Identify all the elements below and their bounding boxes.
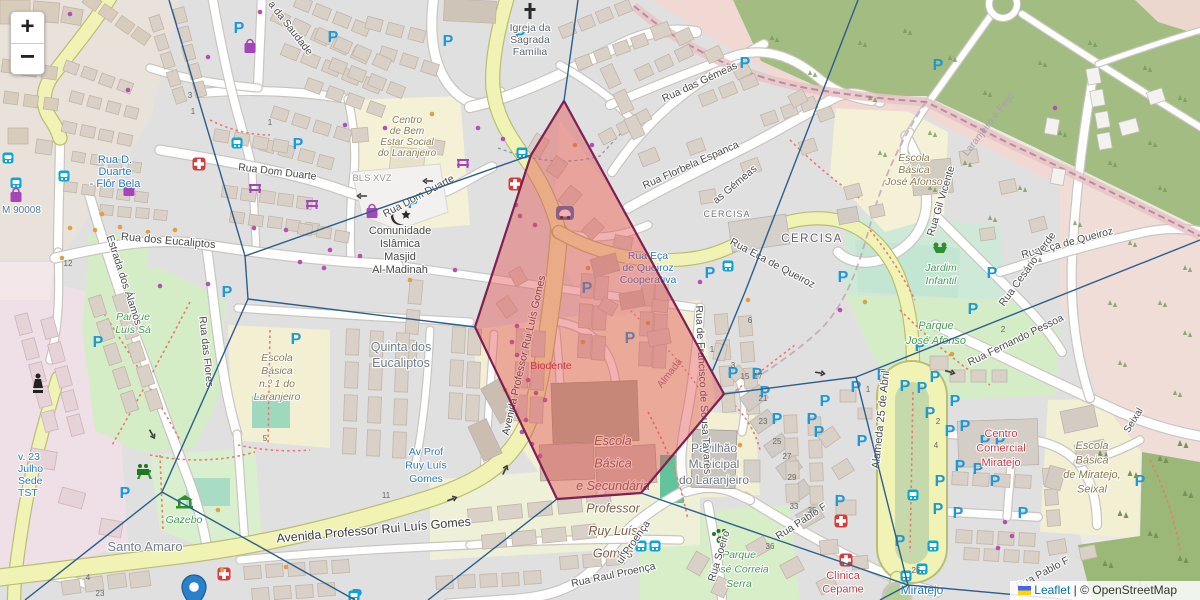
svg-text:Básica: Básica bbox=[1075, 455, 1108, 467]
svg-text:Seixal: Seixal bbox=[1077, 484, 1108, 496]
svg-text:Ruy Luís: Ruy Luís bbox=[405, 460, 446, 472]
svg-text:de Miratejo,: de Miratejo, bbox=[1063, 469, 1120, 481]
svg-text:26: 26 bbox=[912, 566, 921, 575]
svg-text:P: P bbox=[987, 265, 998, 282]
svg-text:Estar Social: Estar Social bbox=[380, 137, 434, 148]
svg-text:Comercial: Comercial bbox=[976, 443, 1026, 455]
svg-text:P: P bbox=[705, 265, 716, 282]
svg-text:Parque: Parque bbox=[918, 320, 953, 332]
svg-text:Quinta dos: Quinta dos bbox=[371, 340, 431, 354]
svg-text:Escola: Escola bbox=[261, 352, 293, 364]
svg-text:Cepame: Cepame bbox=[822, 584, 864, 596]
svg-text:Escola: Escola bbox=[1075, 440, 1108, 452]
svg-text:P: P bbox=[900, 378, 911, 395]
svg-text:Gazebo: Gazebo bbox=[166, 514, 203, 526]
svg-text:Infantil: Infantil bbox=[926, 275, 958, 287]
svg-text:P: P bbox=[933, 57, 944, 74]
svg-text:P: P bbox=[953, 505, 964, 522]
svg-text:5: 5 bbox=[263, 434, 268, 443]
svg-text:Clínica: Clínica bbox=[826, 570, 861, 582]
svg-text:P: P bbox=[234, 20, 245, 37]
svg-text:P: P bbox=[120, 485, 131, 502]
svg-text:P: P bbox=[945, 423, 956, 440]
svg-text:P: P bbox=[838, 269, 849, 286]
svg-text:11: 11 bbox=[382, 491, 391, 500]
svg-text:Jardim: Jardim bbox=[924, 262, 957, 274]
svg-text:Al-Madinah: Al-Madinah bbox=[372, 264, 428, 276]
svg-text:23: 23 bbox=[759, 417, 768, 426]
svg-text:P: P bbox=[291, 331, 302, 348]
svg-text:P: P bbox=[222, 284, 233, 301]
svg-text:n.º 1 do: n.º 1 do bbox=[259, 378, 295, 390]
svg-text:Escola: Escola bbox=[898, 152, 930, 164]
svg-text:1: 1 bbox=[268, 118, 273, 127]
svg-text:Eucaliptos: Eucaliptos bbox=[372, 356, 430, 370]
svg-text:Gomes: Gomes bbox=[409, 473, 443, 485]
svg-text:Duarte: Duarte bbox=[98, 166, 131, 178]
svg-text:P: P bbox=[930, 369, 941, 386]
svg-text:de Bem: de Bem bbox=[390, 126, 424, 137]
svg-text:P: P bbox=[328, 29, 339, 46]
svg-text:P: P bbox=[968, 301, 979, 318]
svg-text:29: 29 bbox=[788, 473, 797, 482]
svg-text:P: P bbox=[950, 393, 961, 410]
svg-text:3: 3 bbox=[731, 361, 736, 370]
svg-text:TST: TST bbox=[18, 487, 38, 499]
svg-text:4: 4 bbox=[86, 573, 91, 582]
svg-text:P: P bbox=[933, 501, 944, 518]
svg-text:2: 2 bbox=[936, 417, 941, 426]
svg-text:1: 1 bbox=[710, 345, 715, 354]
svg-text:Básica: Básica bbox=[261, 365, 293, 377]
svg-text:23: 23 bbox=[96, 589, 105, 598]
svg-text:Pavilhão: Pavilhão bbox=[691, 441, 737, 455]
svg-text:P: P bbox=[740, 55, 751, 72]
svg-text:BLS XVZ: BLS XVZ bbox=[352, 173, 391, 184]
svg-text:1: 1 bbox=[191, 107, 196, 116]
svg-text:P: P bbox=[960, 418, 971, 435]
svg-text:Sagrada: Sagrada bbox=[510, 34, 550, 46]
svg-text:CERCISA: CERCISA bbox=[703, 209, 750, 219]
svg-text:P: P bbox=[857, 433, 868, 450]
svg-text:P: P bbox=[293, 136, 304, 153]
svg-text:Sede: Sede bbox=[18, 475, 43, 487]
svg-text:Av Prof: Av Prof bbox=[409, 446, 443, 458]
svg-text:P: P bbox=[935, 473, 946, 490]
svg-text:27: 27 bbox=[783, 452, 792, 461]
svg-text:Miratejo: Miratejo bbox=[981, 457, 1020, 469]
svg-text:P: P bbox=[955, 458, 966, 475]
svg-text:P: P bbox=[820, 393, 831, 410]
svg-text:P: P bbox=[772, 411, 783, 428]
svg-text:José Afonso: José Afonso bbox=[884, 176, 943, 188]
svg-text:Igreja da: Igreja da bbox=[510, 22, 551, 34]
svg-text:Parque: Parque bbox=[722, 549, 756, 561]
svg-text:4: 4 bbox=[934, 441, 939, 450]
svg-text:- Flôr Bela: - Flôr Bela bbox=[90, 178, 142, 190]
svg-text:3: 3 bbox=[188, 91, 193, 100]
svg-text:35: 35 bbox=[808, 506, 817, 515]
svg-text:Santo Amaro: Santo Amaro bbox=[107, 539, 182, 554]
svg-text:36: 36 bbox=[766, 542, 775, 551]
svg-text:do Laranjeiro: do Laranjeiro bbox=[679, 473, 749, 487]
svg-text:Centro: Centro bbox=[392, 115, 422, 126]
svg-text:17: 17 bbox=[754, 372, 763, 381]
svg-text:Básica: Básica bbox=[898, 164, 930, 176]
svg-text:do Laranjeiro: do Laranjeiro bbox=[378, 148, 437, 159]
svg-text:P: P bbox=[443, 33, 454, 50]
svg-text:P: P bbox=[917, 380, 928, 397]
svg-text:12: 12 bbox=[64, 259, 73, 268]
svg-text:P: P bbox=[807, 411, 818, 428]
svg-text:Centro: Centro bbox=[984, 428, 1017, 440]
svg-text:Masjid: Masjid bbox=[384, 251, 416, 263]
svg-text:v. 23: v. 23 bbox=[18, 451, 40, 463]
svg-text:Professor: Professor bbox=[586, 502, 640, 516]
svg-text:P: P bbox=[1018, 505, 1029, 522]
svg-text:15: 15 bbox=[741, 372, 750, 381]
svg-text:Laranjeiro: Laranjeiro bbox=[254, 391, 301, 403]
svg-text:M 90008: M 90008 bbox=[2, 205, 41, 216]
svg-text:2: 2 bbox=[1001, 325, 1006, 334]
svg-text:Comunidade: Comunidade bbox=[369, 225, 431, 237]
svg-text:Serra: Serra bbox=[726, 578, 752, 590]
svg-text:25: 25 bbox=[773, 437, 782, 446]
svg-text:Família: Família bbox=[513, 46, 548, 58]
svg-text:33: 33 bbox=[790, 502, 799, 511]
svg-text:P: P bbox=[990, 473, 1001, 490]
svg-text:CERCISA: CERCISA bbox=[781, 233, 843, 245]
svg-text:Julho: Julho bbox=[18, 463, 43, 475]
svg-text:21: 21 bbox=[759, 394, 768, 403]
svg-text:P: P bbox=[835, 493, 846, 510]
svg-text:P: P bbox=[93, 334, 104, 351]
svg-text:Islâmica: Islâmica bbox=[380, 238, 421, 250]
svg-text:Rua D.: Rua D. bbox=[98, 154, 132, 166]
svg-text:P: P bbox=[925, 405, 936, 422]
svg-text:6: 6 bbox=[748, 316, 753, 325]
svg-text:1: 1 bbox=[866, 385, 871, 394]
